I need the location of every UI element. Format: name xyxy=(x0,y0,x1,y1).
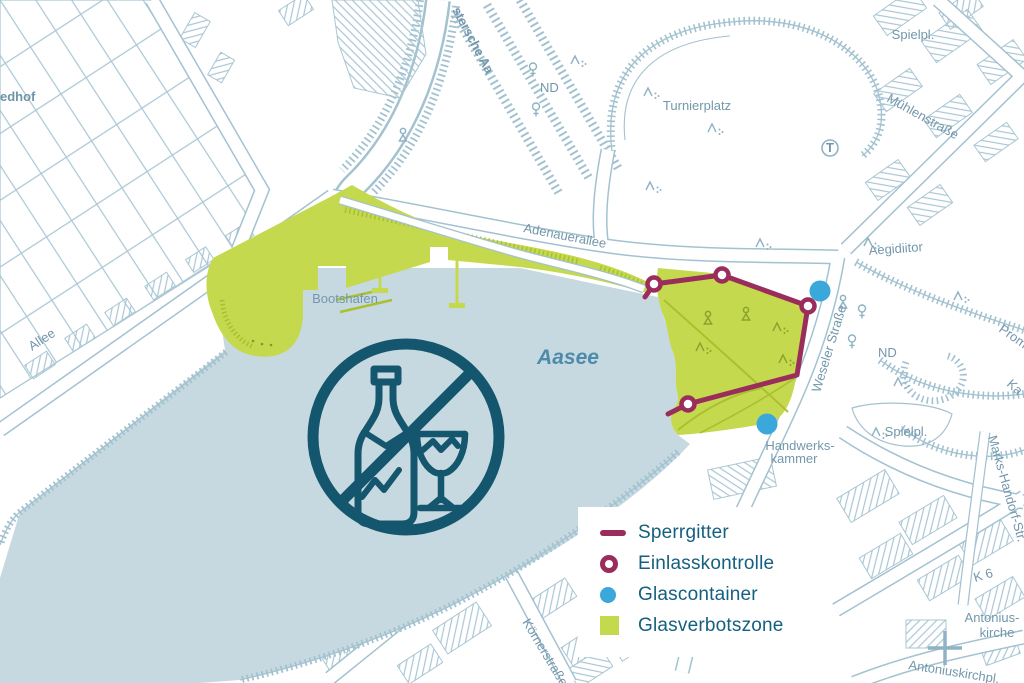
label-nd: ND xyxy=(878,345,897,360)
label-spielplatz-ost: Spielpl. xyxy=(885,424,928,439)
legend: Sperrgitter Einlasskontrolle Glascontain… xyxy=(578,507,830,657)
legend-label-glascontainer: Glascontainer xyxy=(638,584,758,606)
label-antoniuskirche-2: kirche xyxy=(980,625,1015,640)
glascontainer-marker xyxy=(810,281,831,302)
label-nd-top: ND xyxy=(540,80,559,95)
sperrgitter-line-icon xyxy=(600,530,626,536)
einlasskontrolle-marker xyxy=(648,278,661,291)
einlasskontrolle-ring-icon xyxy=(600,555,618,573)
map-canvas: edhof Turnierplatz stersche Aa ND Adenau… xyxy=(0,0,1024,683)
label-bootshafen: Bootshafen xyxy=(312,291,378,306)
legend-item-sperrgitter: Sperrgitter xyxy=(600,517,830,548)
label-antoniuskirche-1: Antonius- xyxy=(965,610,1020,625)
label-friedhof: edhof xyxy=(0,89,36,104)
legend-label-sperrgitter: Sperrgitter xyxy=(638,522,729,544)
einlasskontrolle-marker xyxy=(802,300,815,313)
glascontainer-dot-icon xyxy=(600,587,616,603)
label-spielplatz-nord: Spielpl. xyxy=(892,27,935,42)
legend-item-glascontainer: Glascontainer xyxy=(600,579,830,610)
legend-label-einlasskontrolle: Einlasskontrolle xyxy=(638,553,774,575)
label-tram-stop: T xyxy=(826,140,834,155)
glascontainer-marker xyxy=(757,414,778,435)
label-handwerkskammer-2: kammer xyxy=(771,451,819,466)
einlasskontrolle-marker xyxy=(682,398,695,411)
label-turnierplatz: Turnierplatz xyxy=(663,98,731,113)
glasverbotszone-square-icon xyxy=(600,616,619,635)
label-aasee: Aasee xyxy=(536,346,599,369)
legend-item-einlasskontrolle: Einlasskontrolle xyxy=(600,548,830,579)
einlasskontrolle-marker xyxy=(716,269,729,282)
aasee-glass-ban-map: edhof Turnierplatz stersche Aa ND Adenau… xyxy=(0,0,1024,683)
legend-label-glasverbotszone: Glasverbotszone xyxy=(638,615,784,637)
legend-item-glasverbotszone: Glasverbotszone xyxy=(600,610,830,641)
